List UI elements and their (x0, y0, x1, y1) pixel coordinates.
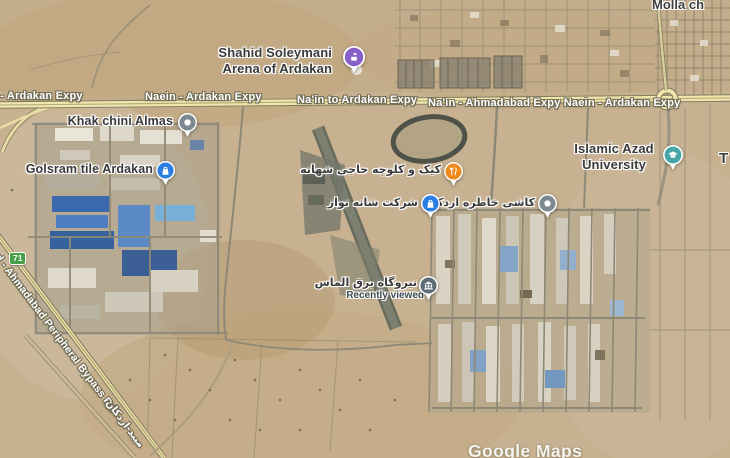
place-label-molla[interactable]: Molla ch (652, 0, 704, 12)
place-label-golsram[interactable]: Golsram tile Ardakan (26, 162, 153, 176)
place-label-arena[interactable]: Shahid Soleymani Arena of Ardakan (218, 45, 332, 77)
dot-icon (184, 119, 190, 125)
marker-golsram[interactable] (155, 160, 176, 186)
route-71-shield: 71 (9, 252, 26, 265)
marker-kashi-khatereh[interactable] (537, 193, 558, 219)
road-label-expressway-combined: Na'in - Ahmadabad Expy Naein - Ardakan E… (428, 97, 680, 109)
map-canvas[interactable]: Naein - Ardakan Expy Naein - Ardakan Exp… (0, 0, 730, 458)
place-label-power-plant[interactable]: نیروگاه برق الماس (315, 276, 417, 289)
recently-viewed-label: Recently viewed (346, 290, 424, 301)
marker-shaneh-navaz[interactable] (420, 193, 441, 219)
marker-khak-chini[interactable] (177, 112, 198, 138)
place-label-shaneh-navaz[interactable]: شرکت شانه نواز (328, 196, 418, 209)
place-label-khak-chini[interactable]: Khak chini Almas (68, 114, 173, 128)
google-maps-watermark[interactable]: Google Maps (468, 441, 582, 458)
place-label-clipped-right[interactable]: T (719, 150, 728, 167)
place-label-islamic-azad[interactable]: Islamic Azad University (568, 141, 660, 173)
road-label-expressway-left: Naein - Ardakan Expy (0, 90, 83, 102)
road-label-nain-to-ardakan: Na'in to Ardakan Expy (297, 94, 417, 106)
marker-power-plant[interactable] (418, 275, 439, 301)
marker-shahid-soleymani-arena[interactable] (342, 45, 366, 74)
road-label-expressway-mid: Naein - Ardakan Expy (145, 91, 262, 103)
marker-islamic-azad-university[interactable] (662, 144, 684, 171)
dot-icon (544, 200, 550, 206)
marker-cake-shop[interactable] (443, 161, 464, 187)
place-label-cake-shop[interactable]: کیک و کلوچه حاجی شهانه (300, 163, 441, 176)
